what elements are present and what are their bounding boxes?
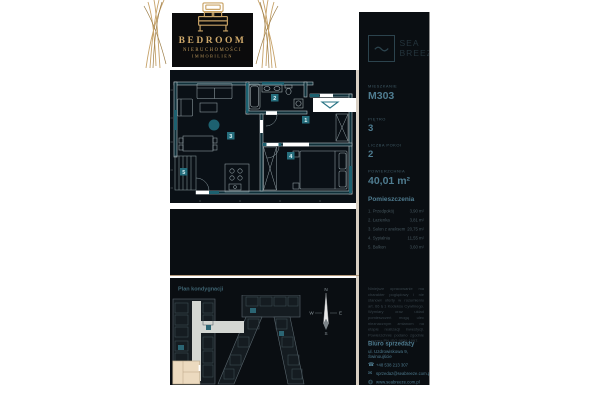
contact-website-row: www.seabreeze.com.pl: [368, 380, 426, 385]
storey-plan-section: Plan kondygnacji: [170, 278, 356, 385]
badge-2: 2: [273, 96, 276, 102]
project-name: SEA BREEZE: [400, 39, 431, 59]
field-label: LICZBA POKOI: [368, 143, 402, 148]
project-name-line2: BREEZE: [400, 49, 431, 59]
bed: [293, 151, 347, 189]
phone-icon: ☎: [368, 363, 373, 368]
wardrobes: [264, 114, 349, 190]
compass-e: E: [339, 311, 342, 316]
room-name: 1. Przedpokój: [368, 209, 394, 214]
spacer-block: [170, 209, 356, 275]
room-name: 5. Balkon: [368, 245, 386, 250]
wave-icon: [368, 35, 395, 62]
project-name-line1: SEA: [400, 39, 431, 49]
contact-phone-row: ☎ +48 538 213 307: [368, 363, 426, 368]
field-value: M303: [368, 90, 397, 102]
gold-decor-right-icon: [250, 0, 280, 68]
field-apartment: MIESZKANIE M303: [368, 84, 397, 102]
room-row: 1. Przedpokój 3,90 m²: [368, 207, 424, 216]
compass-icon: N S W E: [308, 284, 344, 336]
brand-subtitle-2: IMMOBILIEN: [172, 54, 253, 59]
compass-n: N: [324, 287, 327, 292]
field-rooms-count: LICZBA POKOI 2: [368, 143, 402, 160]
bed-icon: [190, 2, 236, 34]
contact-phone[interactable]: +48 538 213 307: [376, 363, 408, 368]
legal-disclaimer: Niniejsze opracowanie ma charakter poglą…: [368, 286, 424, 344]
badge-5: 5: [182, 170, 185, 176]
contact-website[interactable]: www.seabreeze.com.pl: [376, 380, 420, 385]
project-logo: SEA BREEZE: [368, 35, 430, 62]
floor-plan-block: 1 2 3 4 5: [170, 70, 356, 203]
kitchen: [225, 164, 249, 192]
badge-1: 1: [304, 118, 307, 124]
living-furniture: [178, 84, 233, 152]
brand-subtitle-1: NIERUCHOMOŚCI: [172, 48, 253, 53]
room-row: 3. Salon z aneksem 20,75 m²: [368, 225, 424, 234]
badge-3: 3: [229, 134, 232, 140]
room-area: 3,60 m²: [410, 245, 424, 250]
brand-title: BEDROOM: [172, 35, 253, 46]
contact-email[interactable]: sprzedaz@seabreeze.com.pl: [376, 371, 430, 376]
brand-logo-box: BEDROOM NIERUCHOMOŚCI IMMOBILIEN: [172, 13, 253, 67]
contact-section: Biuro sprzedaży ul. Uzdrowiskowa 9, Świn…: [368, 340, 426, 385]
building-overview-plan: [172, 295, 322, 385]
field-label: PIĘTRO: [368, 117, 386, 122]
room-row: 5. Balkon 3,60 m²: [368, 243, 424, 252]
floor-plan: 1 2 3 4 5: [170, 70, 356, 203]
room-area: 3,90 m²: [410, 209, 424, 214]
field-value: 3: [368, 123, 386, 134]
field-label: POWIERZCHNIA: [368, 169, 410, 174]
highlighted-unit: [173, 361, 200, 384]
gold-decor-left-icon: [142, 0, 172, 68]
room-name: 4. Sypialnia: [368, 236, 390, 241]
rooms-list-section: Pomieszczenia 1. Przedpokój 3,90 m² 2. Ł…: [368, 195, 424, 252]
field-value: 40,01 m²: [368, 175, 410, 187]
rooms-title: Pomieszczenia: [368, 195, 424, 203]
compass-w: W: [309, 311, 314, 316]
room-area: 3,81 m²: [410, 218, 424, 223]
room-row: 4. Sypialnia 11,55 m²: [368, 234, 424, 243]
room-area: 11,55 m²: [408, 236, 424, 241]
compass-s: S: [324, 331, 327, 336]
field-area: POWIERZCHNIA 40,01 m²: [368, 169, 410, 187]
storey-plan-title: Plan kondygnacji: [178, 286, 328, 292]
entrance-marker: [313, 98, 356, 112]
field-floor: PIĘTRO 3: [368, 117, 386, 134]
globe-icon: [368, 380, 373, 385]
room-badges: 1 2 3 4 5: [180, 94, 310, 176]
room-name: 3. Salon z aneksem: [368, 227, 405, 232]
field-value: 2: [368, 149, 402, 160]
contact-address: ul. Uzdrowiskowa 9, Świnoujście: [368, 349, 426, 359]
room-row: 2. Łazienka 3,81 m²: [368, 216, 424, 225]
brochure-page: BEDROOM NIERUCHOMOŚCI IMMOBILIEN: [0, 0, 600, 400]
room-name: 2. Łazienka: [368, 218, 390, 223]
room-area: 20,75 m²: [407, 227, 424, 232]
contact-email-row: ✉ sprzedaz@seabreeze.com.pl: [368, 371, 426, 376]
info-sidebar: SEA BREEZE MIESZKANIE M303 PIĘTRO 3 LICZ…: [359, 12, 430, 385]
envelope-icon: ✉: [368, 371, 373, 376]
field-label: MIESZKANIE: [368, 84, 397, 89]
contact-title: Biuro sprzedaży: [368, 340, 426, 347]
